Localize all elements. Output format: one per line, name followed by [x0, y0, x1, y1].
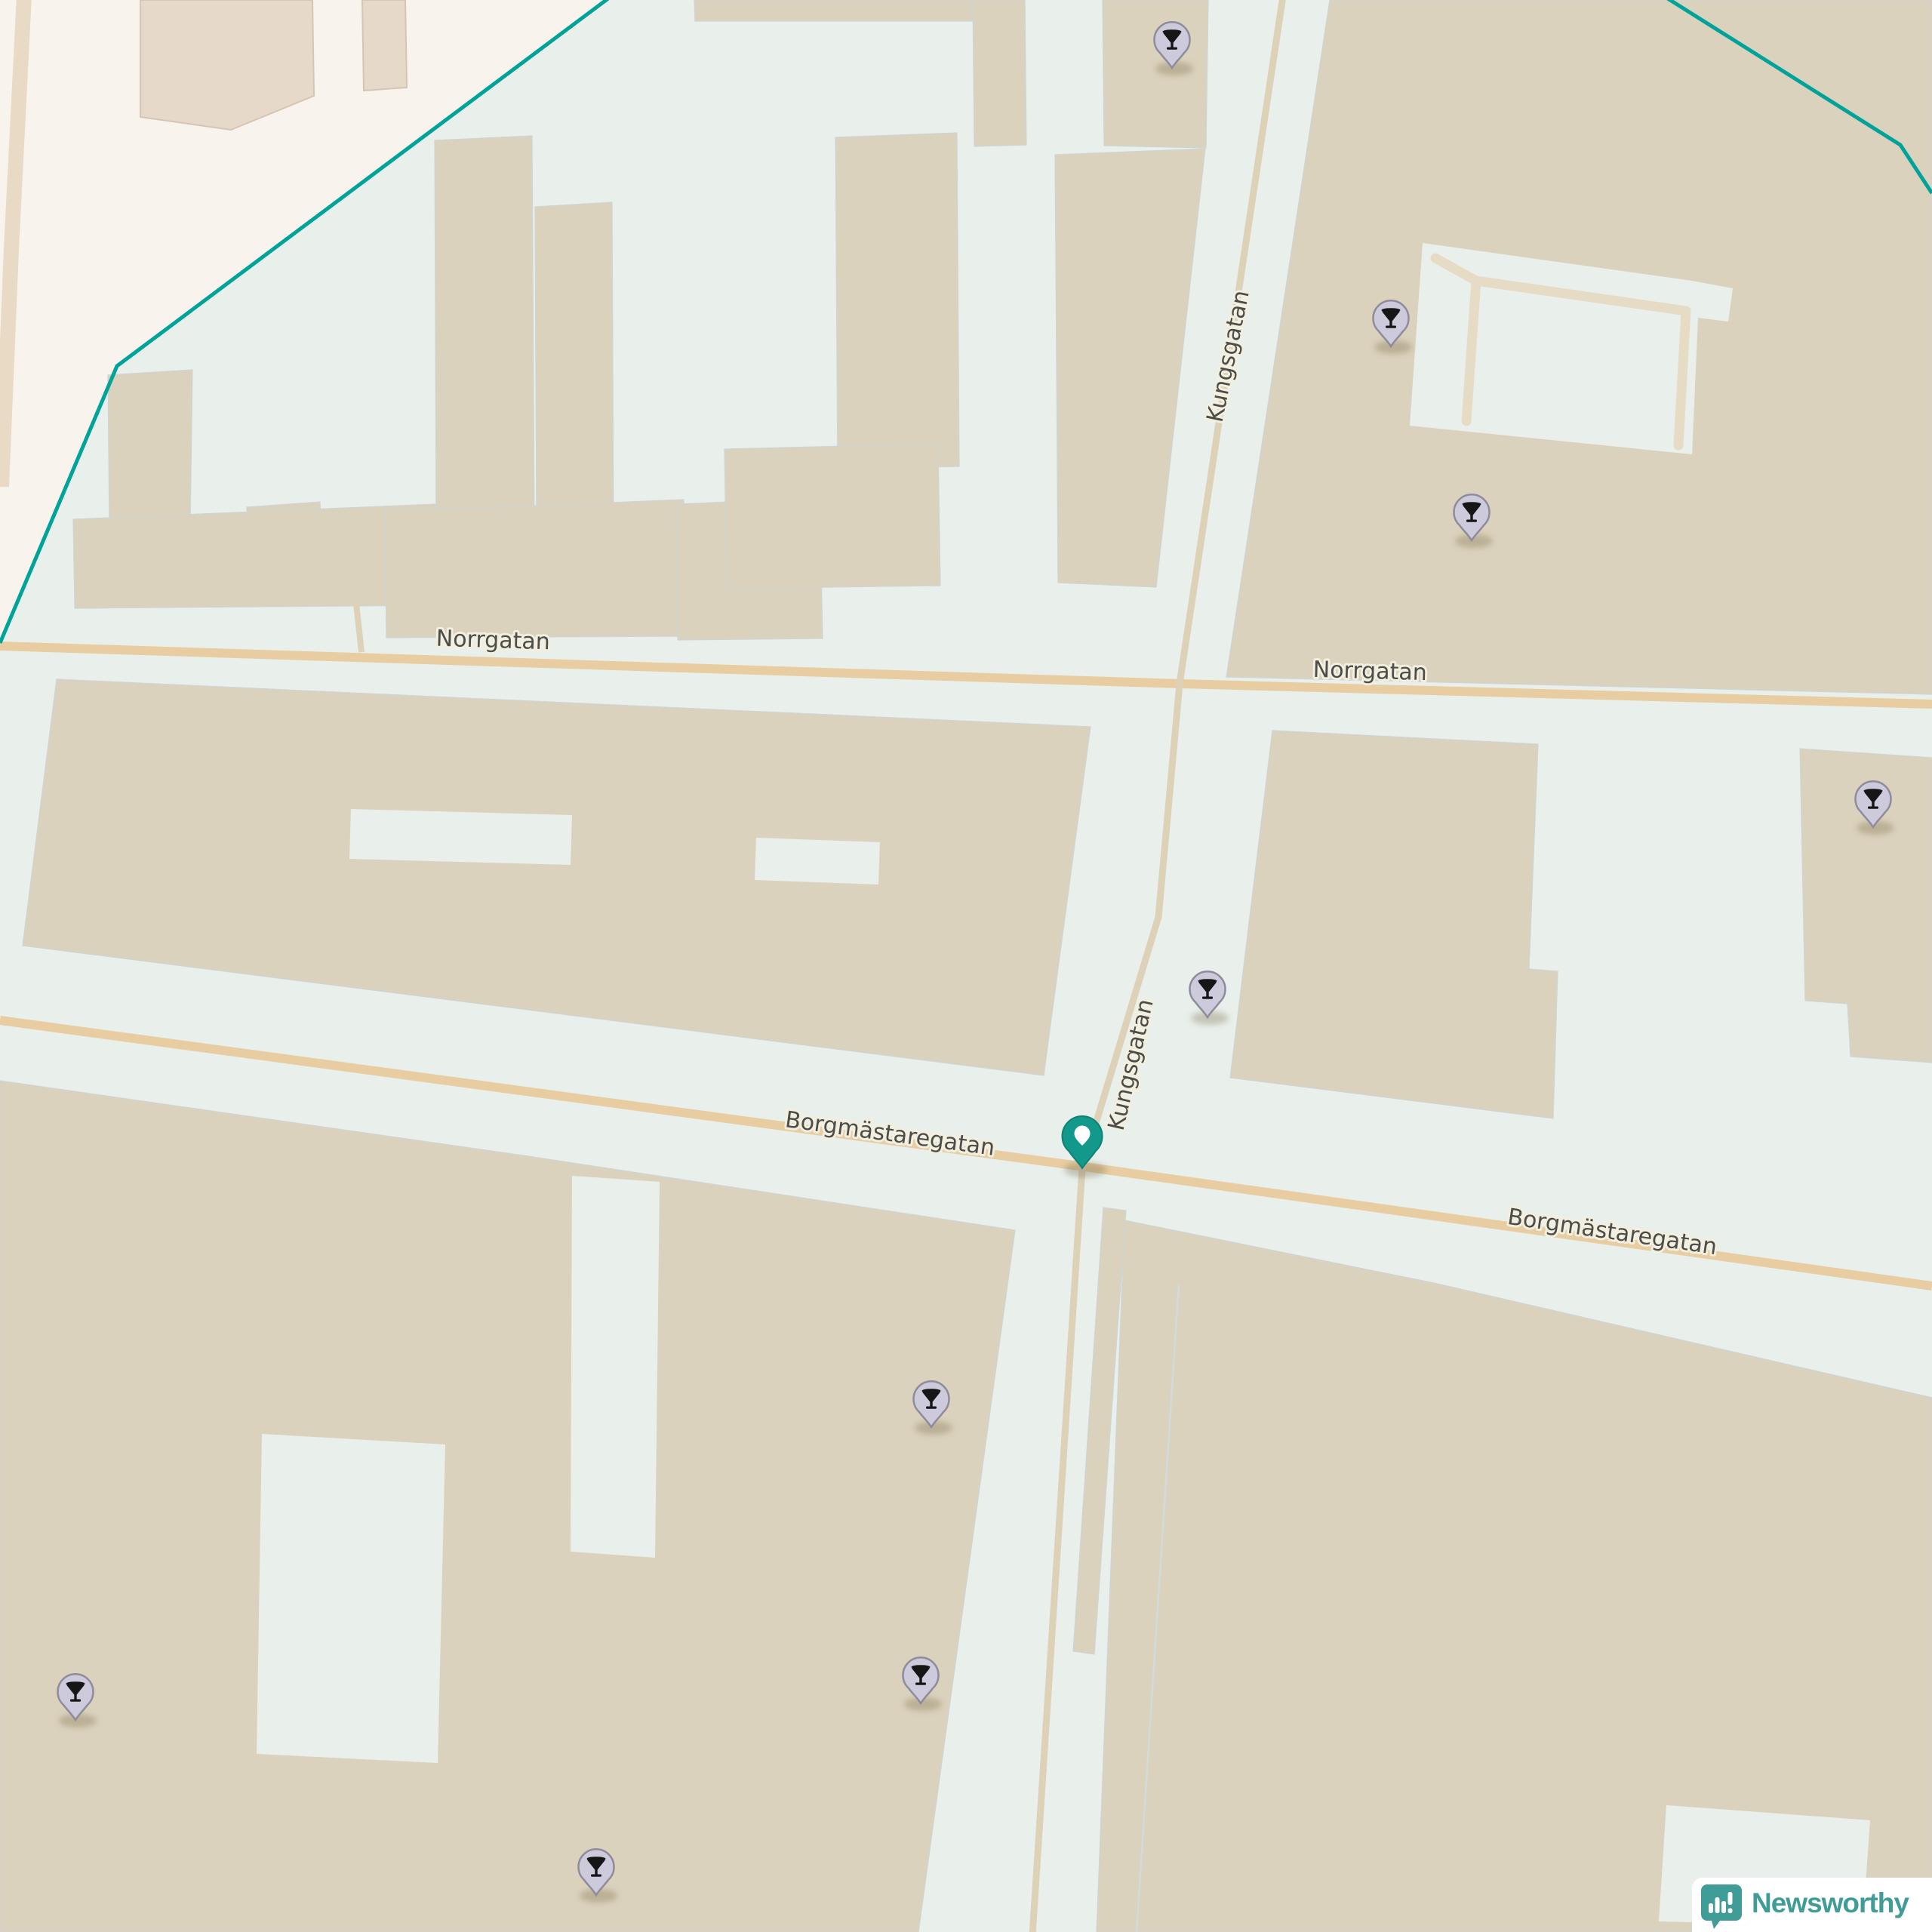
- building: [1103, 0, 1208, 148]
- selected-location-pin[interactable]: [1063, 1116, 1107, 1177]
- newsworthy-logo[interactable]: Newsworthy: [1692, 1878, 1932, 1932]
- building: [694, 0, 974, 21]
- building: [535, 202, 614, 530]
- map-viewport[interactable]: NorrgatanNorrgatanKungsgatanKungsgatanBo…: [0, 0, 1932, 1932]
- building: [108, 370, 192, 530]
- bar-marker-pin[interactable]: [914, 1381, 953, 1435]
- courtyard: [257, 1434, 445, 1763]
- bar-marker-pin[interactable]: [903, 1657, 943, 1711]
- bar-marker-pin[interactable]: [1454, 494, 1494, 548]
- bar-marker-pin[interactable]: [1374, 300, 1413, 354]
- courtyard: [571, 1176, 660, 1558]
- building: [385, 500, 687, 638]
- bar-marker-pin[interactable]: [1155, 22, 1194, 75]
- newsworthy-logo-text: Newsworthy: [1752, 1887, 1909, 1919]
- building: [362, 0, 407, 91]
- building: [73, 504, 438, 608]
- building: [1230, 731, 1558, 1118]
- bar-marker-pin[interactable]: [1856, 781, 1895, 835]
- bar-marker-pin[interactable]: [579, 1849, 618, 1903]
- building: [724, 444, 940, 589]
- building: [973, 0, 1026, 146]
- courtyard: [349, 809, 572, 865]
- newsworthy-icon: [1701, 1883, 1742, 1931]
- map-canvas[interactable]: NorrgatanNorrgatanKungsgatanKungsgatanBo…: [0, 0, 1932, 1932]
- street-name-label: Norrgatan: [1312, 657, 1427, 686]
- street-name-label: Norrgatan: [435, 626, 550, 656]
- building: [835, 133, 959, 469]
- bar-marker-pin[interactable]: [58, 1674, 97, 1727]
- courtyard: [755, 838, 880, 884]
- bar-marker-pin[interactable]: [1190, 971, 1229, 1025]
- building: [435, 136, 534, 531]
- building: [0, 1081, 1015, 1932]
